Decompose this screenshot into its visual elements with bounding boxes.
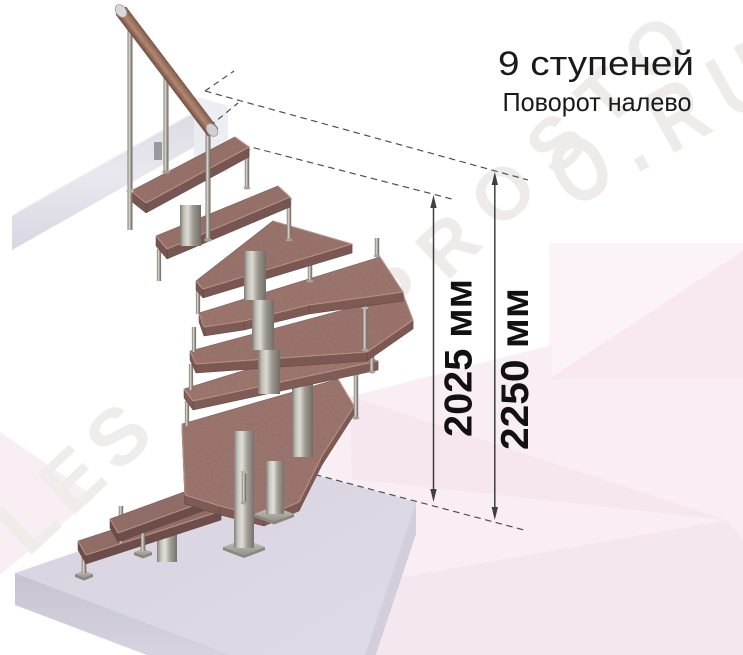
svg-text:2025 мм: 2025 мм — [437, 279, 480, 437]
svg-text:9 ступеней: 9 ступеней — [498, 45, 694, 83]
svg-text:2250 мм: 2250 мм — [494, 288, 537, 450]
svg-text:Поворот налево: Поворот налево — [503, 87, 692, 117]
